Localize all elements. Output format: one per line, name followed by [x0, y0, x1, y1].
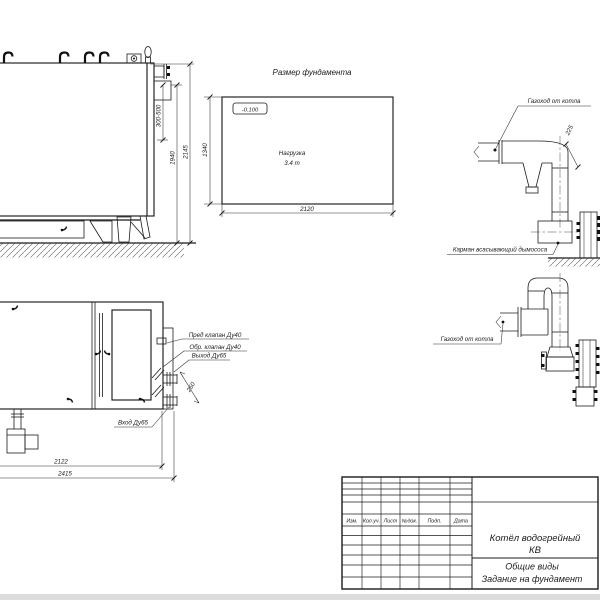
sheet-edge [0, 594, 600, 600]
side-view-dimensions: 300-500 1940 2145 [150, 62, 194, 246]
foundation-plan: Размер фундамента -0.100 Нагрузка 3.4 т … [202, 68, 396, 217]
boiler-top-view: Пред клапан Ду40 Обр. клапан Ду40 Выход … [0, 302, 249, 482]
product-name-line2: КВ [529, 545, 542, 556]
boiler-base-frame [0, 216, 150, 242]
top-view-dimensions: 2122 2415 [0, 411, 177, 482]
smoke-exhauster-lower [541, 340, 600, 406]
level-mark: -0.100 [242, 107, 259, 113]
flue-upper-ductwork [474, 136, 568, 230]
dim-port-spacing: 250 [185, 381, 197, 395]
dim-offset-value: 225 [564, 124, 575, 138]
col-izm: Изм. [346, 519, 357, 525]
load-value: 3.4 т [284, 160, 299, 167]
dim-length-inner: 2122 [53, 459, 68, 466]
port-labels: Пред клапан Ду40 Обр. клапан Ду40 Выход … [114, 332, 249, 427]
col-koluch: Кол.уч. [363, 519, 380, 525]
col-ndok: №док. [402, 519, 418, 525]
product-name-line1: Котёл водогрейный [490, 533, 581, 544]
dim-total-height: 2145 [183, 145, 190, 160]
dim-foundation-width: 2120 [299, 206, 314, 213]
flue-upper-duct-label: Газоход от котла [528, 98, 581, 105]
title-block: Изм. Кол.уч. Лист №док. Подп. Дата Котёл… [342, 477, 598, 589]
dim-foundation-height: 1340 [202, 143, 209, 157]
dim-body-height: 1940 [170, 151, 177, 165]
col-list: Лист [383, 519, 398, 525]
check-valve-label: Обр. клапан Ду40 [189, 344, 241, 351]
inlet-label: Вход Ду65 [118, 420, 148, 427]
flue-duct-lower-view: Газоход от котла [433, 273, 600, 406]
suction-pocket-label: Карман всасывающий дымососа [453, 247, 548, 254]
lifting-hook-icon [60, 53, 69, 64]
ground-hatching [0, 243, 196, 258]
outlet-label: Выход Ду65 [192, 353, 227, 360]
fan-casing [580, 212, 597, 258]
col-podp: Подп. [427, 519, 441, 525]
cyclone-dust-cone [523, 163, 542, 187]
flue-outlet-stub [154, 64, 171, 100]
doc-type-line2: Задание на фундамент [482, 574, 583, 584]
flue-lower-duct-label: Газоход от котла [441, 336, 494, 343]
lifting-hook-icon [85, 53, 94, 64]
lifting-hook-icon [100, 53, 109, 64]
flue-duct-upper-view: Газоход от котла 225 [447, 98, 600, 267]
foundation-plan-title: Размер фундамента [273, 68, 353, 77]
burner-pump-unit [7, 409, 38, 453]
smoke-exhauster-upper [531, 212, 600, 267]
top-valve-fitting [127, 47, 151, 64]
fan-casing [579, 340, 596, 387]
dim-length-outer: 2415 [57, 471, 72, 478]
doc-type-line1: Общие виды [505, 562, 559, 572]
safety-valve-label: Пред клапан Ду40 [189, 332, 242, 339]
col-data: Дата [453, 519, 468, 525]
load-label: Нагрузка [279, 150, 306, 157]
boiler-drawing-canvas: 300-500 1940 2145 Размер фундамента -0.1… [0, 0, 600, 600]
lifting-hook-icon [4, 53, 13, 64]
boiler-door-panel [112, 310, 151, 400]
dim-flue-range: 300-500 [156, 104, 163, 127]
boiler-side-view: 300-500 1940 2145 [0, 47, 196, 258]
safety-valve-fitting [157, 338, 166, 344]
flue-lower-ductwork [496, 273, 568, 351]
